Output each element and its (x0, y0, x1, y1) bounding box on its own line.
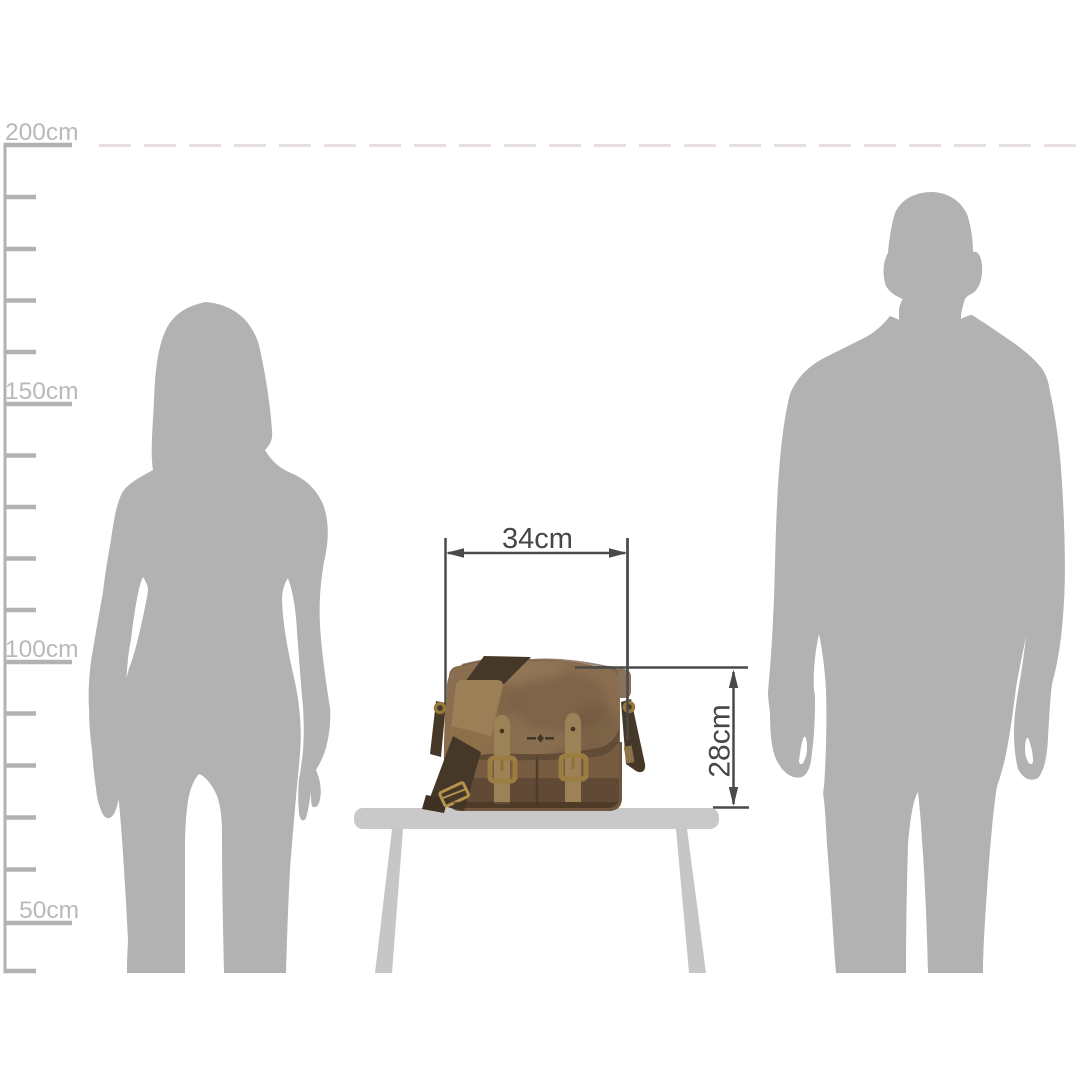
svg-text:50cm: 50cm (19, 897, 79, 924)
svg-text:100cm: 100cm (5, 636, 79, 663)
svg-text:150cm: 150cm (5, 378, 79, 405)
svg-text:34cm: 34cm (502, 523, 573, 555)
svg-text:28cm: 28cm (704, 704, 737, 777)
svg-text:200cm: 200cm (5, 119, 79, 146)
